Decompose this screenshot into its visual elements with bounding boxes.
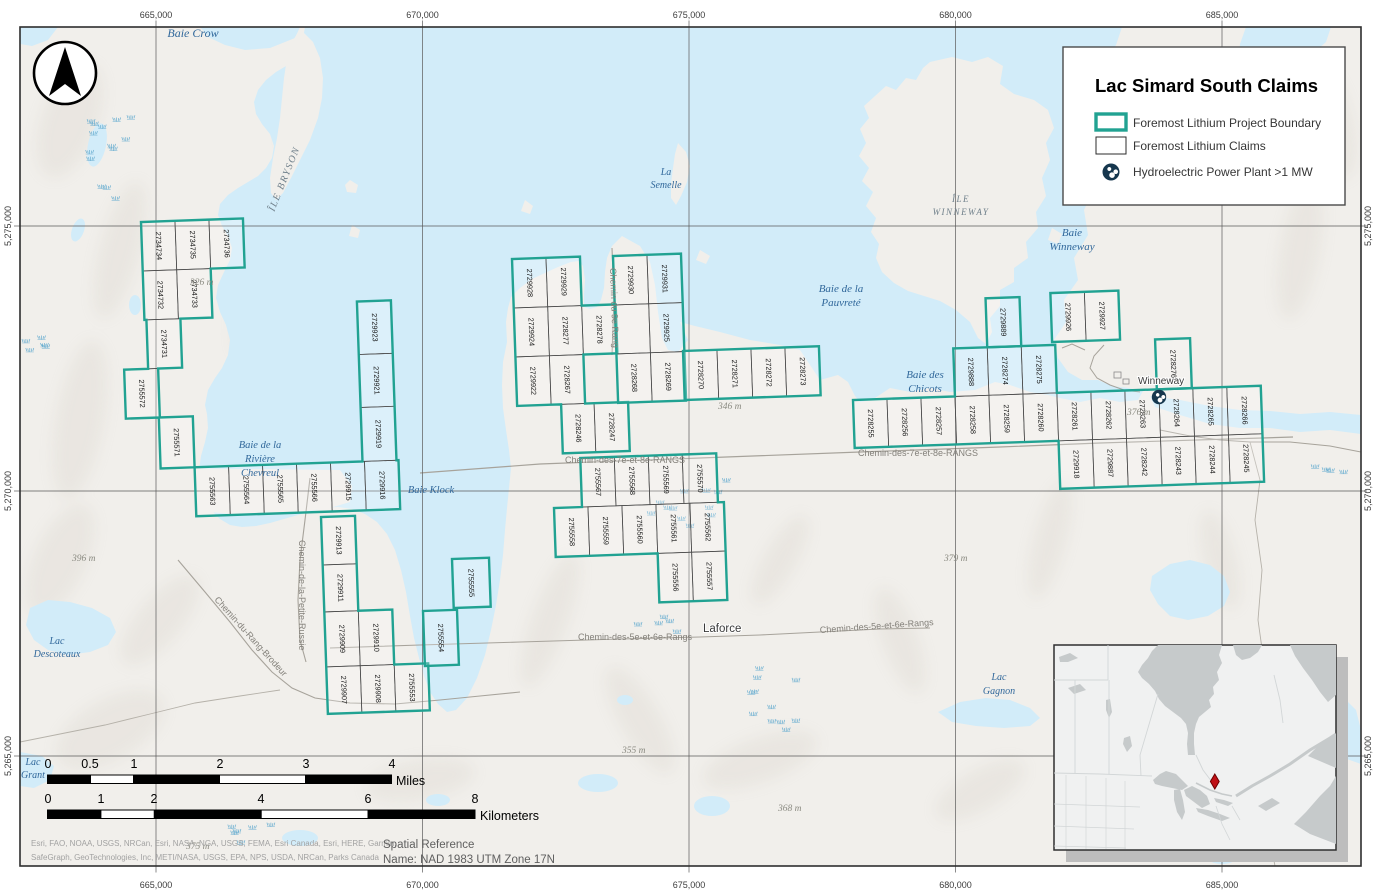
svg-text:2734735: 2734735 xyxy=(188,230,198,259)
svg-text:Laforce: Laforce xyxy=(703,623,741,635)
svg-text:Esri, FAO, NOAA, USGS, NRCan,: Esri, FAO, NOAA, USGS, NRCan, Esri, NASA… xyxy=(31,839,396,848)
svg-text:2728246: 2728246 xyxy=(573,414,583,443)
svg-text:680,000: 680,000 xyxy=(939,10,972,20)
svg-text:670,000: 670,000 xyxy=(406,880,439,890)
svg-text:Kilometers: Kilometers xyxy=(480,809,539,823)
svg-text:2755554: 2755554 xyxy=(436,624,446,653)
svg-text:Hydroelectric Power Plant >1 M: Hydroelectric Power Plant >1 MW xyxy=(1133,165,1313,179)
svg-text:2729908: 2729908 xyxy=(373,674,383,703)
svg-text:Foremost Lithium Project Bound: Foremost Lithium Project Boundary xyxy=(1133,116,1321,130)
svg-text:685,000: 685,000 xyxy=(1206,880,1239,890)
svg-text:2729919: 2729919 xyxy=(374,419,384,448)
svg-text:2729925: 2729925 xyxy=(662,313,672,342)
svg-text:670,000: 670,000 xyxy=(406,10,439,20)
svg-text:2728247: 2728247 xyxy=(607,413,617,442)
svg-text:355 m: 355 m xyxy=(621,746,646,756)
svg-text:Baie Crow: Baie Crow xyxy=(167,26,218,40)
svg-text:2755553: 2755553 xyxy=(407,673,417,702)
svg-text:Pauvreté: Pauvreté xyxy=(820,297,861,309)
svg-text:2755559: 2755559 xyxy=(601,516,611,545)
svg-text:Baie de la: Baie de la xyxy=(239,440,282,451)
svg-text:2755555: 2755555 xyxy=(466,568,476,597)
svg-text:Lac: Lac xyxy=(49,636,66,647)
svg-text:2728244: 2728244 xyxy=(1207,445,1217,474)
svg-text:Baie: Baie xyxy=(1062,227,1082,239)
svg-text:2728273: 2728273 xyxy=(798,357,808,386)
svg-text:2755557: 2755557 xyxy=(704,562,714,591)
svg-text:2728256: 2728256 xyxy=(900,408,910,437)
svg-text:2755556: 2755556 xyxy=(670,563,680,592)
svg-text:379 m: 379 m xyxy=(943,554,968,564)
svg-text:8: 8 xyxy=(472,792,479,806)
svg-text:2728265: 2728265 xyxy=(1206,397,1216,426)
svg-text:2728272: 2728272 xyxy=(764,358,774,387)
svg-text:2728262: 2728262 xyxy=(1104,401,1114,430)
svg-text:Miles: Miles xyxy=(396,774,425,788)
svg-text:Descoteaux: Descoteaux xyxy=(33,649,81,660)
svg-text:2729922: 2729922 xyxy=(528,366,538,395)
svg-text:Baie des: Baie des xyxy=(906,369,944,381)
svg-text:2729887: 2729887 xyxy=(1105,449,1115,478)
svg-text:2729929: 2729929 xyxy=(559,267,569,296)
svg-text:3: 3 xyxy=(303,757,310,771)
svg-text:2: 2 xyxy=(217,757,224,771)
svg-text:2728243: 2728243 xyxy=(1173,446,1183,475)
svg-text:2728268: 2728268 xyxy=(629,363,639,392)
svg-text:Baie Klock: Baie Klock xyxy=(408,485,455,496)
svg-text:2729926: 2729926 xyxy=(1063,303,1073,332)
svg-text:2728260: 2728260 xyxy=(1036,403,1046,432)
svg-text:Grant: Grant xyxy=(21,770,45,781)
svg-text:4: 4 xyxy=(258,792,265,806)
svg-text:5,270,000: 5,270,000 xyxy=(3,471,13,511)
svg-text:Chemin-des-7e-et-8e-RANGS: Chemin-des-7e-et-8e-RANGS xyxy=(565,455,685,465)
svg-text:4: 4 xyxy=(389,757,396,771)
svg-text:368 m: 368 m xyxy=(777,804,802,814)
svg-text:Semelle: Semelle xyxy=(650,180,682,191)
svg-text:2729915: 2729915 xyxy=(343,472,353,501)
svg-text:Gagnon: Gagnon xyxy=(983,686,1015,697)
svg-text:376 m: 376 m xyxy=(1126,408,1151,418)
svg-text:2729921: 2729921 xyxy=(372,366,382,395)
svg-text:2728242: 2728242 xyxy=(1139,448,1149,477)
svg-text:2729911: 2729911 xyxy=(336,574,346,602)
svg-text:680,000: 680,000 xyxy=(939,880,972,890)
svg-text:2728258: 2728258 xyxy=(968,405,978,434)
svg-text:665,000: 665,000 xyxy=(140,10,173,20)
svg-text:2729928: 2729928 xyxy=(525,269,535,298)
svg-text:2728267: 2728267 xyxy=(562,365,572,394)
svg-text:Lac Simard South Claims: Lac Simard South Claims xyxy=(1095,75,1318,96)
svg-text:Chicots: Chicots xyxy=(908,383,942,395)
svg-text:665,000: 665,000 xyxy=(140,880,173,890)
svg-text:5,265,000: 5,265,000 xyxy=(3,736,13,776)
svg-text:2729924: 2729924 xyxy=(527,318,537,347)
svg-text:2728277: 2728277 xyxy=(561,316,571,345)
svg-text:0: 0 xyxy=(45,757,52,771)
svg-text:WINNEWAY: WINNEWAY xyxy=(933,207,990,217)
svg-text:2755560: 2755560 xyxy=(635,515,645,544)
svg-text:Winneway: Winneway xyxy=(1049,241,1094,253)
svg-text:2728261: 2728261 xyxy=(1070,402,1080,431)
svg-text:2728259: 2728259 xyxy=(1002,404,1012,433)
svg-text:5,275,000: 5,275,000 xyxy=(3,206,13,246)
svg-text:1: 1 xyxy=(131,757,138,771)
svg-text:2728270: 2728270 xyxy=(696,361,706,390)
svg-text:2755566: 2755566 xyxy=(309,473,319,502)
svg-text:2729918: 2729918 xyxy=(1071,450,1081,479)
svg-text:2755572: 2755572 xyxy=(137,379,147,408)
svg-text:0: 0 xyxy=(45,792,52,806)
svg-text:2729923: 2729923 xyxy=(370,313,380,342)
svg-text:2755567: 2755567 xyxy=(593,468,603,497)
svg-text:6: 6 xyxy=(365,792,372,806)
svg-text:2734734: 2734734 xyxy=(154,232,164,261)
svg-text:2: 2 xyxy=(151,792,158,806)
svg-text:ÎLE: ÎLE xyxy=(951,194,970,204)
svg-text:2729916: 2729916 xyxy=(377,471,387,500)
svg-text:2728271: 2728271 xyxy=(730,359,740,388)
svg-text:Chevreul: Chevreul xyxy=(241,468,279,479)
svg-text:2734731: 2734731 xyxy=(159,329,169,358)
svg-text:Rivière: Rivière xyxy=(244,454,275,465)
svg-text:2729913: 2729913 xyxy=(334,526,344,555)
svg-text:2729889: 2729889 xyxy=(998,308,1008,337)
svg-text:2728266: 2728266 xyxy=(1240,396,1250,425)
svg-text:Chemin-de-la-Petite-Russie: Chemin-de-la-Petite-Russie xyxy=(297,540,307,651)
svg-text:2728255: 2728255 xyxy=(866,409,876,438)
svg-text:2729909: 2729909 xyxy=(337,624,347,653)
svg-text:1: 1 xyxy=(98,792,105,806)
svg-text:5,270,000: 5,270,000 xyxy=(1363,471,1373,511)
svg-text:2728278: 2728278 xyxy=(595,315,605,344)
svg-text:2755561: 2755561 xyxy=(669,514,679,543)
svg-text:Lac: Lac xyxy=(991,672,1008,683)
svg-text:0.5: 0.5 xyxy=(81,757,98,771)
svg-text:2755570: 2755570 xyxy=(695,464,705,493)
svg-text:2728275: 2728275 xyxy=(1034,355,1044,384)
svg-text:685,000: 685,000 xyxy=(1206,10,1239,20)
svg-text:2734736: 2734736 xyxy=(222,229,232,258)
svg-text:2755562: 2755562 xyxy=(703,513,713,542)
svg-text:346 m: 346 m xyxy=(717,402,742,412)
svg-text:2728245: 2728245 xyxy=(1241,444,1251,473)
svg-text:326 m: 326 m xyxy=(189,278,214,288)
svg-text:2729888: 2729888 xyxy=(966,358,976,387)
svg-text:2729927: 2729927 xyxy=(1097,301,1107,330)
svg-text:5,275,000: 5,275,000 xyxy=(1363,206,1373,246)
svg-text:Chemin-des-5e-et-6e-Rangs: Chemin-des-5e-et-6e-Rangs xyxy=(578,632,693,642)
svg-text:Chemin-des-7e-et-8e-RANGS: Chemin-des-7e-et-8e-RANGS xyxy=(858,448,978,458)
svg-text:2755563: 2755563 xyxy=(207,477,217,506)
svg-text:2729907: 2729907 xyxy=(339,675,349,704)
svg-text:396 m: 396 m xyxy=(71,554,96,564)
svg-text:SafeGraph, GeoTechnologies, In: SafeGraph, GeoTechnologies, Inc, METI/NA… xyxy=(31,853,380,862)
svg-text:5,265,000: 5,265,000 xyxy=(1363,736,1373,776)
svg-text:2729931: 2729931 xyxy=(660,264,670,293)
svg-text:Foremost Lithium Claims: Foremost Lithium Claims xyxy=(1133,139,1266,153)
svg-text:La: La xyxy=(660,167,672,178)
svg-text:675,000: 675,000 xyxy=(673,880,706,890)
svg-text:2728257: 2728257 xyxy=(934,407,944,436)
svg-text:2728274: 2728274 xyxy=(1000,356,1010,385)
svg-text:Lac: Lac xyxy=(25,757,42,768)
svg-text:2755558: 2755558 xyxy=(567,518,577,547)
svg-text:2755571: 2755571 xyxy=(172,428,182,457)
svg-text:2755568: 2755568 xyxy=(627,466,637,495)
svg-text:Spatial Reference: Spatial Reference xyxy=(383,839,474,851)
svg-text:2729930: 2729930 xyxy=(626,266,636,295)
svg-text:2755564: 2755564 xyxy=(241,476,251,505)
svg-text:675,000: 675,000 xyxy=(673,10,706,20)
svg-text:2729910: 2729910 xyxy=(371,623,381,652)
svg-text:Baie de la: Baie de la xyxy=(819,283,864,295)
svg-text:2734732: 2734732 xyxy=(156,281,166,310)
svg-text:2755569: 2755569 xyxy=(661,465,671,494)
svg-text:2728264: 2728264 xyxy=(1172,398,1182,427)
svg-text:2728269: 2728269 xyxy=(663,362,673,391)
svg-text:2728276: 2728276 xyxy=(1168,349,1178,378)
svg-text:Winneway: Winneway xyxy=(1138,376,1184,387)
svg-text:Name: NAD 1983 UTM Zone 17N: Name: NAD 1983 UTM Zone 17N xyxy=(383,854,555,866)
